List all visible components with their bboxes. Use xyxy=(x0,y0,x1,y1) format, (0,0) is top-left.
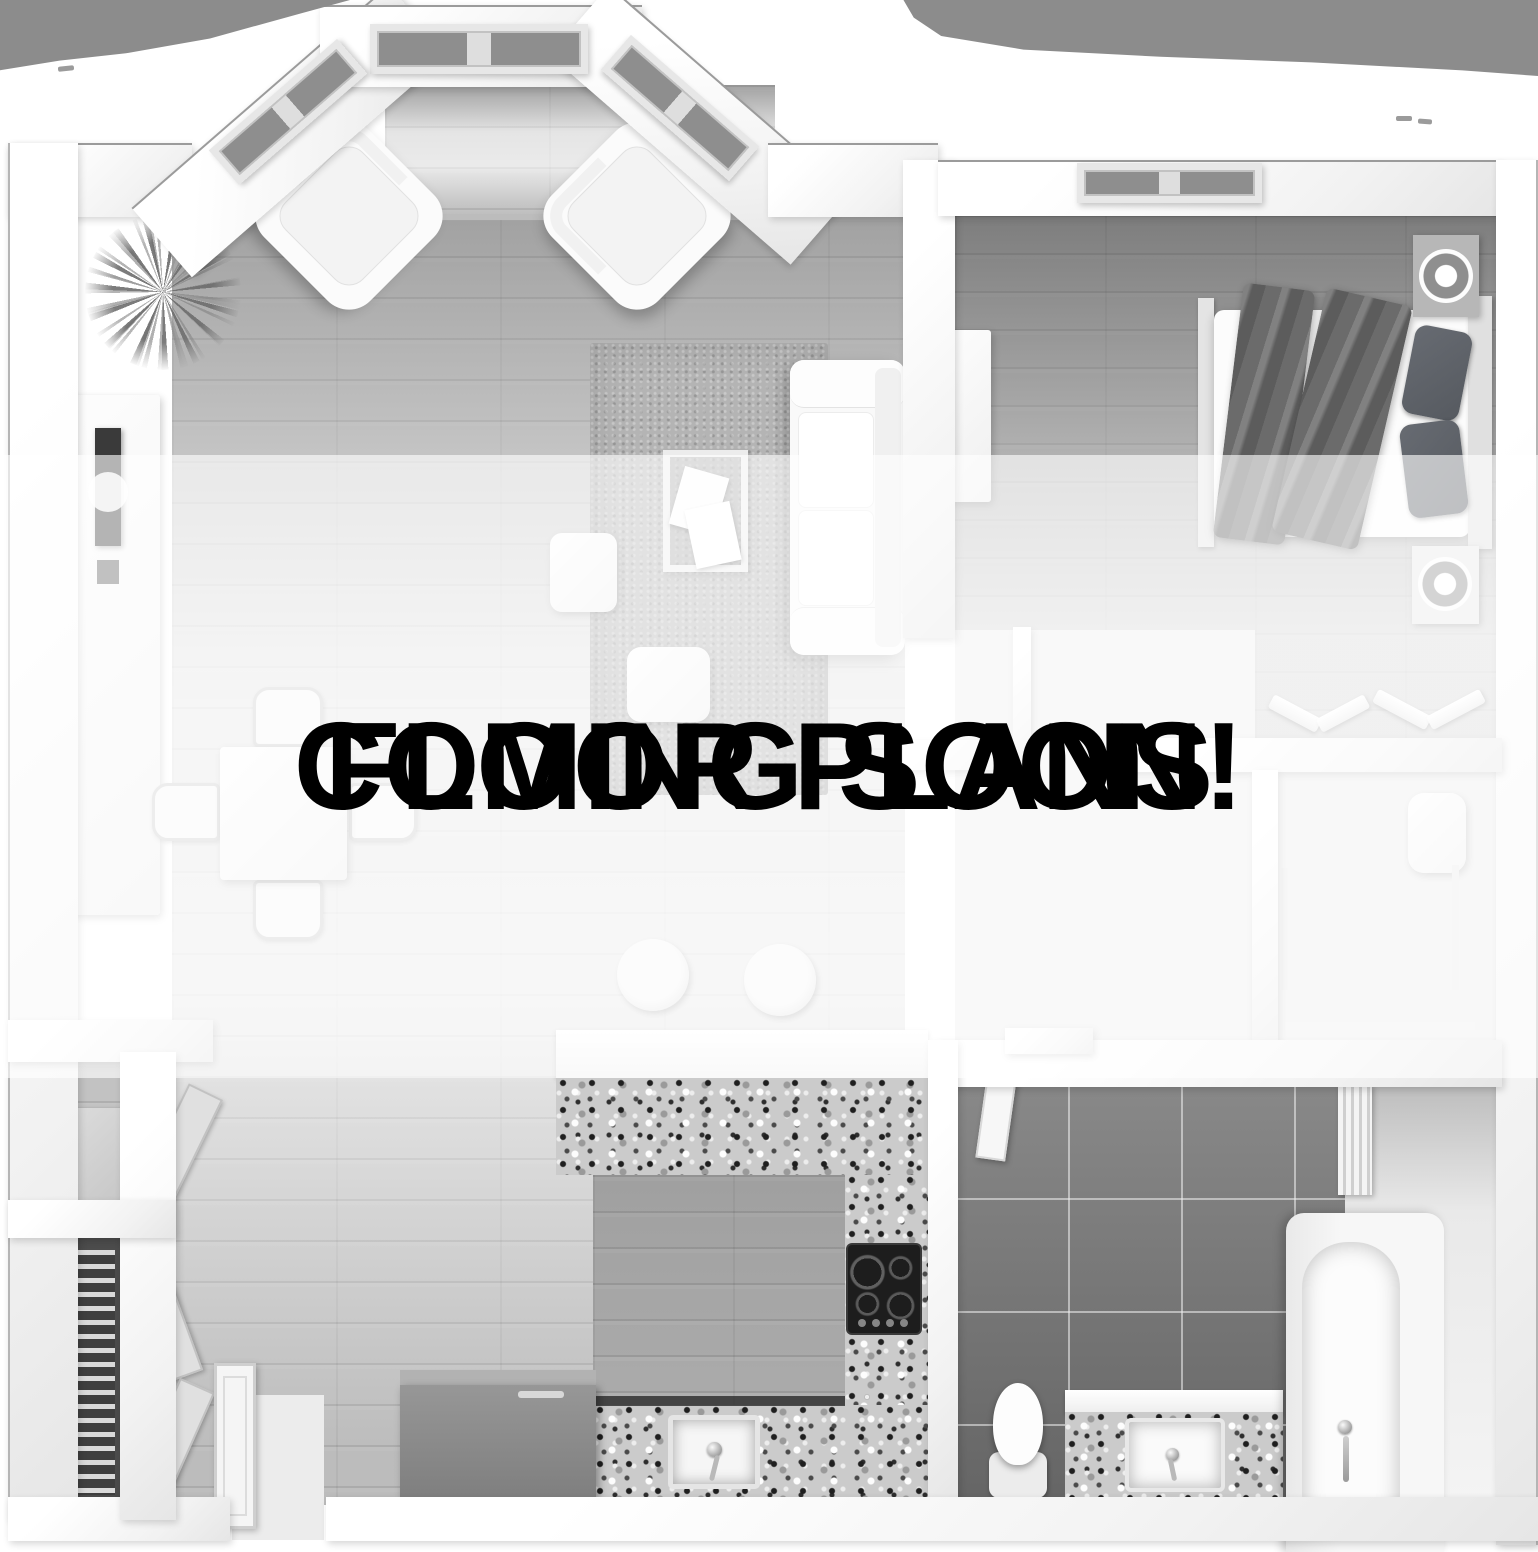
kitchen-counter-top xyxy=(556,1078,928,1175)
overlay-band: FLOOR PLANS COMING SOON! xyxy=(0,455,1538,1078)
floor-plan-placeholder-image: FLOOR PLANS COMING SOON! xyxy=(0,0,1538,1552)
bathroom-shelf-stack xyxy=(1338,1085,1372,1195)
bedroom-window xyxy=(1077,163,1262,203)
cooktop-knobs xyxy=(858,1319,866,1327)
cooktop xyxy=(848,1245,920,1333)
kitchen-counter-shadow-line xyxy=(593,1396,845,1406)
bathtub-basin xyxy=(1302,1242,1400,1540)
entry-door-panel-inset xyxy=(223,1376,247,1516)
wall-bathroom-left xyxy=(928,1040,958,1510)
wall-closet-divider xyxy=(8,1200,176,1238)
vanity-top-edge xyxy=(1065,1390,1283,1414)
bathtub-faucet xyxy=(1338,1420,1352,1434)
refrigerator-handle xyxy=(518,1391,564,1398)
bathtub-faucet-lever xyxy=(1343,1436,1349,1482)
overlay-title-line2: COMING SOON! xyxy=(294,705,1245,829)
wall-bottom-left-segment xyxy=(8,1497,230,1541)
outside-mask-top-right xyxy=(852,0,1538,80)
stray-mark-left xyxy=(58,65,74,72)
refrigerator xyxy=(400,1385,596,1497)
table-lamp-north xyxy=(1419,249,1473,303)
wall-bottom-right-segment xyxy=(326,1497,1538,1541)
toilet-lid xyxy=(993,1383,1043,1465)
bay-window-top xyxy=(370,24,588,74)
stray-mark-right-a xyxy=(1396,116,1412,121)
stray-mark-right-b xyxy=(1418,119,1432,125)
kitchen-inner-floor xyxy=(593,1175,845,1407)
kitchen-counter-bottom xyxy=(593,1405,928,1497)
wall-closet-right-band xyxy=(120,1052,176,1520)
